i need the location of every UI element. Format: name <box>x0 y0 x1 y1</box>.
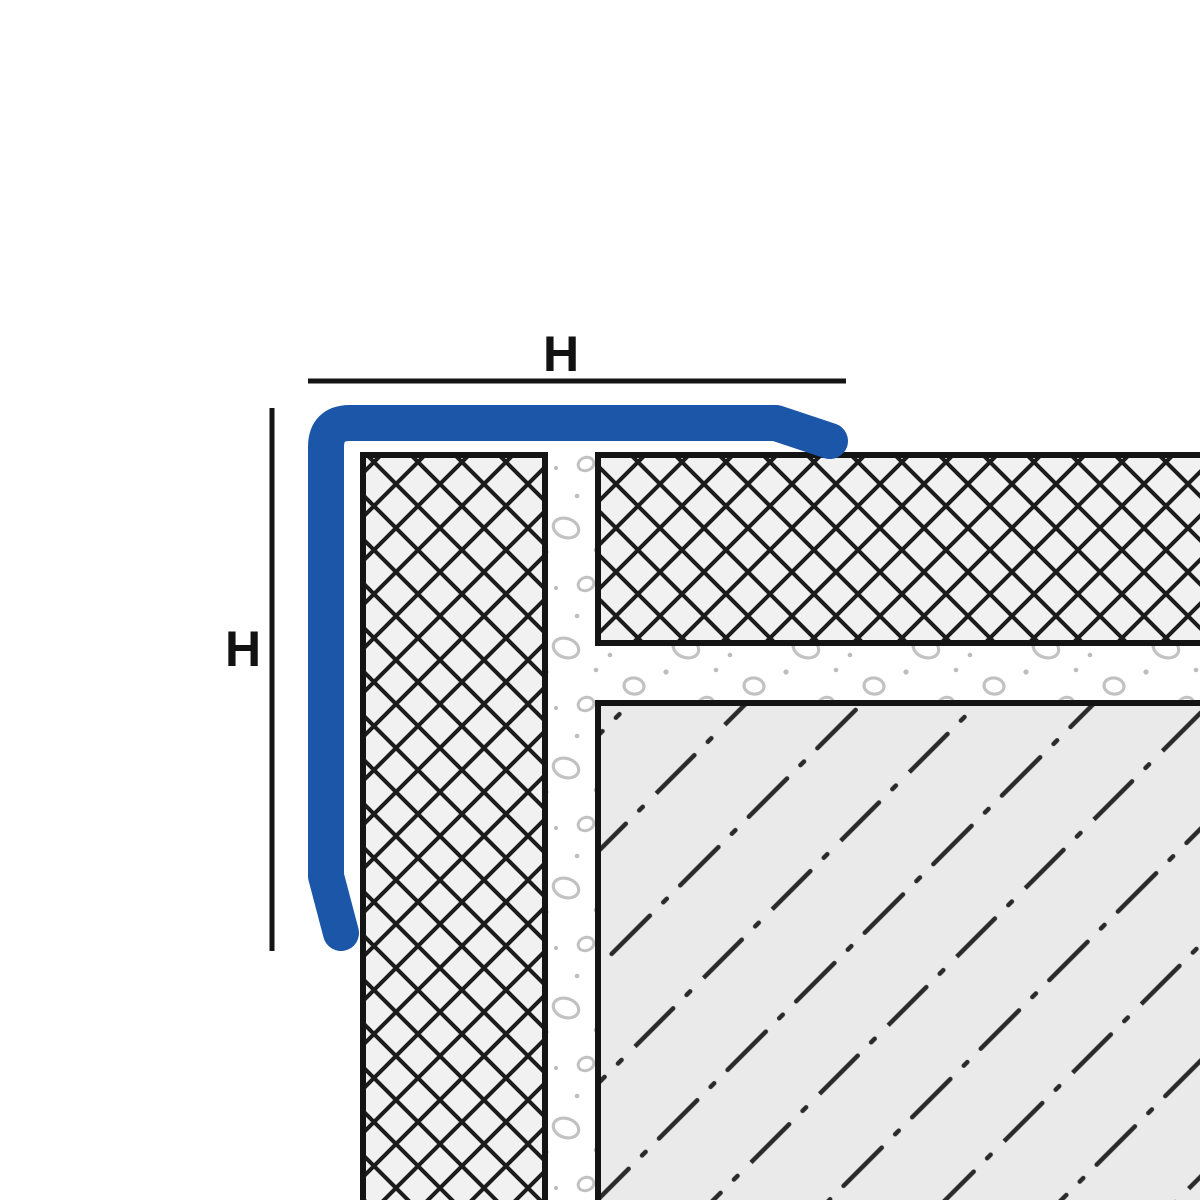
substrate-concrete <box>598 703 1200 1200</box>
diagram-canvas: H H <box>0 0 1200 1200</box>
tile-top-face <box>598 455 1200 643</box>
corner-profile-technical-drawing: H H <box>0 0 1200 1200</box>
tile-side-face <box>363 455 545 1200</box>
dimension-label-top: H <box>543 326 579 382</box>
dimension-label-left: H <box>225 621 261 677</box>
